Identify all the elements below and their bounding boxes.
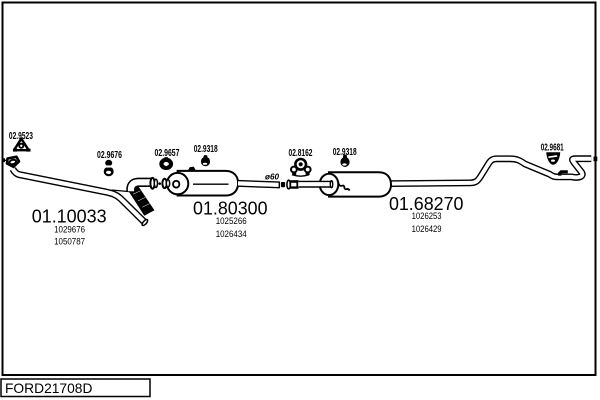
svg-text:02.9676: 02.9676 (97, 150, 122, 161)
svg-text:1050787: 1050787 (54, 236, 85, 247)
svg-text:02.9657: 02.9657 (155, 148, 180, 159)
svg-text:1025266: 1025266 (216, 216, 247, 227)
svg-text:02.9318: 02.9318 (194, 144, 218, 155)
svg-text:1026253: 1026253 (412, 211, 442, 222)
svg-text:1026434: 1026434 (216, 229, 247, 240)
svg-text:ø60: ø60 (265, 173, 280, 182)
svg-text:02.9681: 02.9681 (541, 142, 564, 153)
svg-text:1026429: 1026429 (412, 224, 442, 235)
svg-text:02.8162: 02.8162 (289, 148, 313, 159)
svg-text:FORD21708D: FORD21708D (5, 381, 92, 396)
svg-text:1029676: 1029676 (54, 224, 85, 235)
